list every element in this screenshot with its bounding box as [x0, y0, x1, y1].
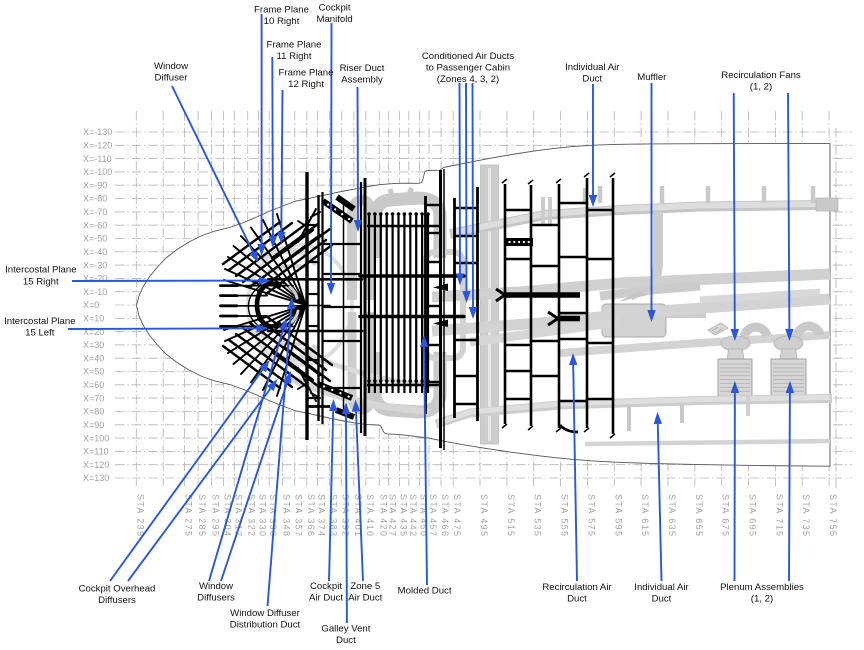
svg-text:X=60: X=60 — [83, 380, 104, 390]
svg-text:X=70: X=70 — [83, 393, 104, 403]
svg-text:X=-70: X=-70 — [83, 207, 107, 217]
svg-text:STA 420: STA 420 — [378, 494, 388, 537]
svg-text:X=-100: X=-100 — [83, 167, 112, 177]
svg-text:15 Left: 15 Left — [25, 327, 55, 338]
svg-text:STA 715: STA 715 — [774, 494, 784, 537]
svg-text:STA 755: STA 755 — [828, 494, 838, 537]
svg-text:Frame Plane: Frame Plane — [279, 68, 334, 79]
svg-text:Individual Air: Individual Air — [634, 582, 689, 593]
svg-text:STA 535: STA 535 — [533, 494, 543, 537]
svg-text:X=100: X=100 — [83, 433, 109, 443]
svg-text:Cockpit Overhead: Cockpit Overhead — [79, 584, 156, 595]
svg-text:Muffler: Muffler — [637, 72, 667, 83]
svg-text:Window Diffuser: Window Diffuser — [230, 608, 300, 619]
svg-text:STA 366: STA 366 — [306, 494, 316, 537]
svg-text:Diffusers: Diffusers — [197, 593, 235, 604]
svg-text:X=-110: X=-110 — [83, 154, 112, 164]
svg-text:Air Duct: Air Duct — [348, 593, 382, 604]
svg-text:to Passenger Cabin: to Passenger Cabin — [426, 63, 510, 74]
svg-text:STA 427: STA 427 — [388, 494, 398, 537]
svg-text:STA 615: STA 615 — [640, 494, 650, 537]
svg-text:Air Duct: Air Duct — [309, 593, 343, 604]
svg-text:X=30: X=30 — [83, 340, 104, 350]
svg-text:STA 410: STA 410 — [365, 494, 375, 537]
svg-text:X=130: X=130 — [83, 473, 109, 483]
svg-text:Duct: Duct — [567, 594, 587, 605]
svg-text:X=0: X=0 — [83, 300, 99, 310]
svg-text:X=110: X=110 — [83, 447, 109, 457]
svg-text:(1, 2): (1, 2) — [751, 594, 773, 605]
svg-text:15 Right: 15 Right — [23, 276, 59, 287]
svg-text:X=-130: X=-130 — [83, 127, 112, 137]
svg-text:X=-50: X=-50 — [83, 234, 107, 244]
svg-text:X=80: X=80 — [83, 407, 104, 417]
svg-text:Window: Window — [154, 61, 188, 72]
svg-text:(Zones 4, 3, 2): (Zones 4, 3, 2) — [437, 74, 499, 85]
svg-text:X=-90: X=-90 — [83, 180, 107, 190]
svg-text:Individual Air: Individual Air — [565, 62, 620, 73]
svg-text:STA 575: STA 575 — [586, 494, 596, 537]
svg-text:Molded Duct: Molded Duct — [398, 585, 452, 596]
svg-text:X=40: X=40 — [83, 353, 104, 363]
svg-text:X=120: X=120 — [83, 460, 109, 470]
svg-text:Manifold: Manifold — [316, 14, 352, 25]
svg-text:X=-20: X=-20 — [83, 274, 107, 284]
svg-text:Window: Window — [199, 581, 233, 592]
svg-text:Intercostal Plane: Intercostal Plane — [5, 265, 76, 276]
svg-text:STA 330: STA 330 — [258, 494, 268, 537]
svg-text:STA 695: STA 695 — [748, 494, 758, 537]
svg-text:Cockpit: Cockpit — [310, 581, 342, 592]
svg-text:12 Right: 12 Right — [288, 79, 324, 90]
svg-text:STA 348: STA 348 — [282, 494, 292, 537]
svg-text:STA 457: STA 457 — [428, 494, 438, 537]
svg-text:Diffusers: Diffusers — [98, 595, 136, 606]
svg-text:Duct: Duct — [336, 635, 356, 646]
svg-text:Cockpit: Cockpit — [319, 3, 351, 14]
svg-text:STA 595: STA 595 — [613, 494, 623, 537]
svg-text:X=-120: X=-120 — [83, 141, 112, 151]
svg-text:Galley Vent: Galley Vent — [321, 623, 370, 634]
svg-text:STA 466: STA 466 — [440, 494, 450, 537]
svg-text:X=50: X=50 — [83, 367, 104, 377]
svg-text:STA 435: STA 435 — [398, 494, 408, 537]
svg-text:Intercostal Plane: Intercostal Plane — [4, 316, 75, 327]
svg-text:Duct: Duct — [652, 594, 672, 605]
svg-text:Diffuser: Diffuser — [155, 73, 189, 84]
svg-text:Recirculation Fans: Recirculation Fans — [721, 70, 801, 81]
svg-text:STA 515: STA 515 — [506, 494, 516, 537]
svg-text:STA 239: STA 239 — [135, 494, 145, 537]
svg-text:STA 635: STA 635 — [667, 494, 677, 537]
svg-text:X=-60: X=-60 — [83, 220, 107, 230]
svg-text:STA 675: STA 675 — [721, 494, 731, 537]
svg-text:Frame Plane: Frame Plane — [254, 5, 309, 16]
svg-text:STA 475: STA 475 — [452, 494, 462, 537]
svg-text:Duct: Duct — [582, 74, 602, 85]
svg-text:Plenum Assemblies: Plenum Assemblies — [720, 582, 804, 593]
svg-text:Zone 5: Zone 5 — [350, 581, 380, 592]
svg-text:X=-10: X=-10 — [83, 287, 107, 297]
svg-text:Riser Duct: Riser Duct — [340, 63, 385, 74]
svg-text:Assembly: Assembly — [341, 75, 383, 86]
svg-text:STA 735: STA 735 — [801, 494, 811, 537]
svg-text:STA 295: STA 295 — [211, 494, 221, 537]
svg-text:X=10: X=10 — [83, 314, 104, 324]
svg-text:X=-80: X=-80 — [83, 194, 107, 204]
svg-text:X=-40: X=-40 — [83, 247, 107, 257]
svg-text:Conditioned Air Ducts: Conditioned Air Ducts — [422, 51, 514, 62]
svg-text:STA 374: STA 374 — [317, 494, 327, 537]
svg-text:X=90: X=90 — [83, 420, 104, 430]
svg-text:Recirculation Air: Recirculation Air — [542, 582, 612, 593]
svg-text:Distribution Duct: Distribution Duct — [230, 619, 301, 630]
svg-text:STA 555: STA 555 — [560, 494, 570, 537]
svg-text:Frame Plane: Frame Plane — [267, 40, 322, 51]
svg-text:STA 442: STA 442 — [408, 494, 418, 537]
svg-text:X=-30: X=-30 — [83, 260, 107, 270]
svg-text:10 Right: 10 Right — [264, 16, 300, 27]
svg-text:STA 655: STA 655 — [694, 494, 704, 537]
svg-text:STA 495: STA 495 — [479, 494, 489, 537]
svg-text:(1, 2): (1, 2) — [750, 82, 772, 93]
svg-text:STA 357: STA 357 — [294, 494, 304, 537]
svg-text:11 Right: 11 Right — [276, 51, 311, 62]
svg-text:STA 285: STA 285 — [197, 494, 207, 537]
